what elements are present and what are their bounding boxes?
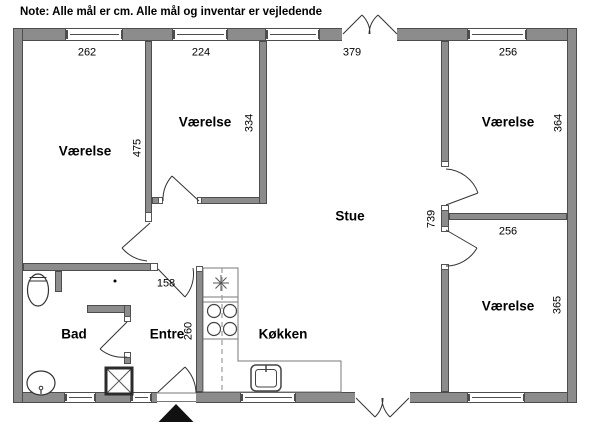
dim-ne-height: 364 <box>554 114 565 132</box>
dim-se-height: 365 <box>553 296 564 314</box>
room-label-koekken: Køkken <box>259 327 308 341</box>
door-bad <box>100 322 127 357</box>
door-ne-room <box>446 169 478 205</box>
floor-plan: Note: Alle mål er cm. Alle mål og invent… <box>0 0 600 441</box>
fixtures <box>27 268 341 422</box>
dim-n-height: 334 <box>245 114 256 132</box>
toilet <box>28 274 49 306</box>
dim-stue-top-width: 379 <box>343 48 361 59</box>
kitchen-sink <box>251 365 281 391</box>
dim-nw-width: 262 <box>78 48 96 59</box>
door-se-room <box>446 230 477 266</box>
room-label-stue: Stue <box>335 209 364 223</box>
plan-overlay <box>0 0 600 441</box>
dim-entre-opening: 158 <box>157 279 175 290</box>
room-label-entre: Entre <box>150 327 185 341</box>
bad-door-stop-dot <box>114 280 117 283</box>
entrance-marker-triangle <box>159 404 194 422</box>
room-label-bad: Bad <box>61 327 87 341</box>
door-swings <box>100 15 478 417</box>
room-label-vaerelse-se: Værelse <box>482 299 535 313</box>
bathroom-sink <box>27 371 55 395</box>
dim-stue-height: 739 <box>427 210 438 228</box>
dim-ne-width: 256 <box>499 48 517 59</box>
entrance-threshold <box>157 393 196 402</box>
dim-n-width: 224 <box>192 48 210 59</box>
dim-entre-height: 260 <box>184 322 195 340</box>
room-label-vaerelse-nw: Værelse <box>59 144 112 158</box>
dim-nw-height: 475 <box>133 139 144 157</box>
room-label-vaerelse-n: Værelse <box>179 115 232 129</box>
dim-se-width: 256 <box>499 227 517 238</box>
door-nw-room <box>122 223 150 261</box>
double-door-top <box>343 15 397 34</box>
double-door-garden <box>356 398 409 417</box>
door-n-room <box>163 176 199 201</box>
room-label-vaerelse-ne: Værelse <box>482 115 535 129</box>
shower-unit <box>106 368 132 394</box>
door-entrance <box>157 367 196 393</box>
